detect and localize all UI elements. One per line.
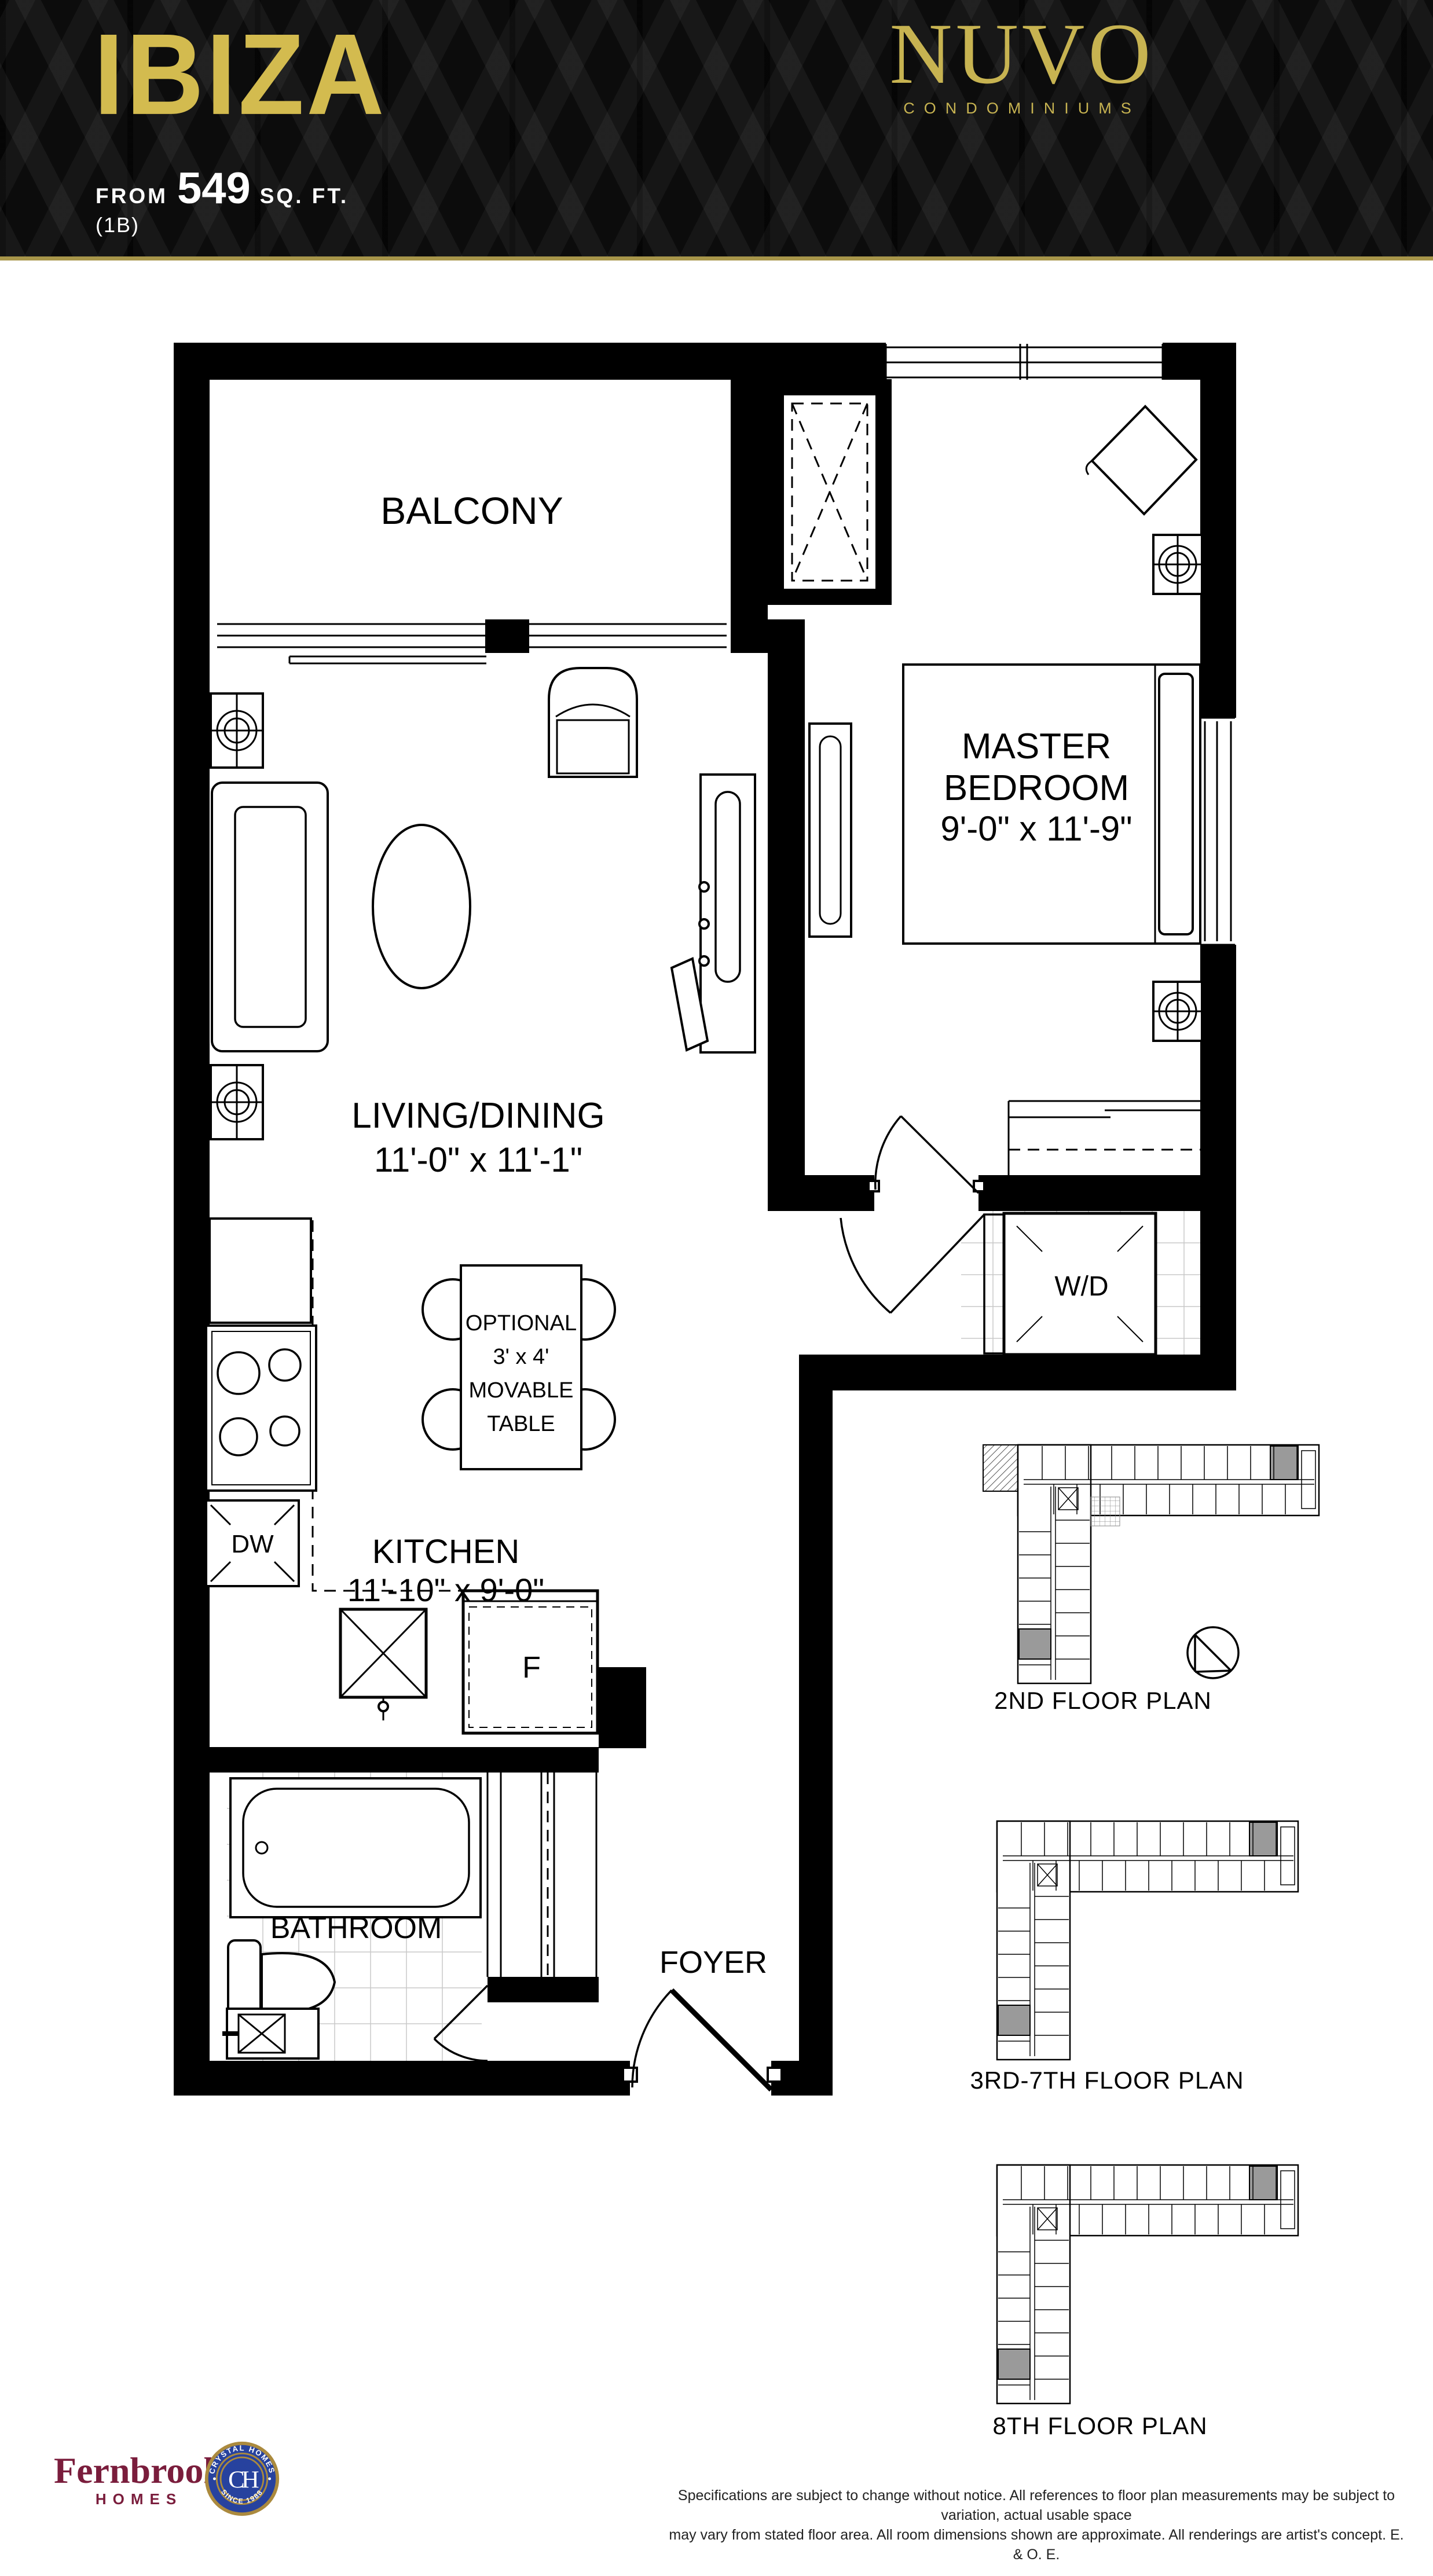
stove bbox=[206, 1326, 316, 1491]
service-shaft bbox=[768, 379, 892, 605]
fridge-label: F bbox=[522, 1651, 541, 1685]
disclaimer: Specifications are subject to change wit… bbox=[666, 2486, 1407, 2564]
optional-table-label-1: OPTIONAL bbox=[466, 1311, 577, 1335]
armchair bbox=[549, 668, 637, 777]
kitchen: DW F OPTIONAL 3' x 4' MOVABLE TABLE KITC bbox=[206, 1219, 615, 1733]
keyplan-8th bbox=[997, 2165, 1298, 2403]
keyplan-2nd bbox=[983, 1445, 1319, 1683]
keyplan-8th-caption: 8TH FLOOR PLAN bbox=[992, 2412, 1207, 2439]
optional-table-label-4: TABLE bbox=[487, 1412, 555, 1436]
living-dining-label: LIVING/DINING bbox=[351, 1096, 605, 1136]
coffee-table bbox=[373, 825, 470, 988]
coat-closet bbox=[501, 1773, 596, 1977]
north-compass bbox=[1188, 1627, 1238, 1678]
dresser bbox=[809, 724, 851, 937]
master-bedroom-dims: 9'-0" x 11'-9" bbox=[940, 809, 1132, 848]
balcony-label: BALCONY bbox=[380, 489, 563, 532]
keyplan-2nd-caption: 2ND FLOOR PLAN bbox=[994, 1687, 1212, 1714]
fridge: F bbox=[463, 1591, 598, 1733]
optional-table-label-2: 3' x 4' bbox=[493, 1345, 549, 1369]
crystal-monogram: CH bbox=[228, 2467, 259, 2494]
bedroom-closet bbox=[1009, 1101, 1200, 1175]
bathtub bbox=[230, 1778, 481, 1917]
floorplan-canvas: BALCONY MASTER BEDROOM 9'-0" x 11'-9" bbox=[0, 0, 1433, 2576]
master-bedroom-label-1: MASTER bbox=[962, 726, 1111, 766]
kitchen-dims: 11'-10" x 9'-0" bbox=[347, 1572, 544, 1608]
bathroom-label: BATHROOM bbox=[270, 1911, 442, 1945]
pillow-chair bbox=[1092, 406, 1196, 514]
disclaimer-line-1: Specifications are subject to change wit… bbox=[666, 2486, 1407, 2525]
sofa bbox=[212, 783, 328, 1051]
disclaimer-line-2: may vary from stated floor area. All roo… bbox=[666, 2525, 1407, 2564]
optional-table: OPTIONAL 3' x 4' MOVABLE TABLE bbox=[423, 1265, 615, 1469]
kitchen-cabinet bbox=[210, 1219, 311, 1323]
foyer: FOYER bbox=[501, 1773, 782, 2090]
fernbrook-sub: HOMES bbox=[52, 2490, 226, 2508]
tv-unit bbox=[672, 775, 755, 1052]
crystal-homes-badge: CH CRYSTAL HOMES SINCE 1988 bbox=[203, 2439, 281, 2518]
living-dining-dims: 11'-0" x 11'-1" bbox=[374, 1140, 582, 1179]
washer-dryer-label: W/D bbox=[1054, 1271, 1108, 1302]
keyplan-3rd-7th bbox=[997, 1821, 1298, 2060]
bed-headboard bbox=[1159, 674, 1193, 934]
dishwasher-label: DW bbox=[231, 1530, 274, 1558]
kitchen-sink bbox=[340, 1609, 426, 1720]
master-bedroom-label-2: BEDROOM bbox=[944, 768, 1129, 808]
fernbrook-name: Fernbrook bbox=[52, 2452, 226, 2489]
living-dining: LIVING/DINING 11'-0" x 11'-1" bbox=[211, 668, 755, 1179]
keyplan-3rd-7th-caption: 3RD-7TH FLOOR PLAN bbox=[970, 2067, 1244, 2094]
laundry-nook: W/D bbox=[841, 1211, 1200, 1355]
vanity-sink bbox=[222, 2009, 318, 2058]
bathroom: BATHROOM bbox=[222, 1773, 488, 2061]
foyer-label: FOYER bbox=[659, 1945, 767, 1980]
dishwasher: DW bbox=[206, 1500, 299, 1586]
kitchen-label: KITCHEN bbox=[372, 1533, 520, 1570]
fernbrook-logo: Fernbrook HOMES bbox=[52, 2452, 226, 2508]
optional-table-label-3: MOVABLE bbox=[469, 1378, 574, 1403]
